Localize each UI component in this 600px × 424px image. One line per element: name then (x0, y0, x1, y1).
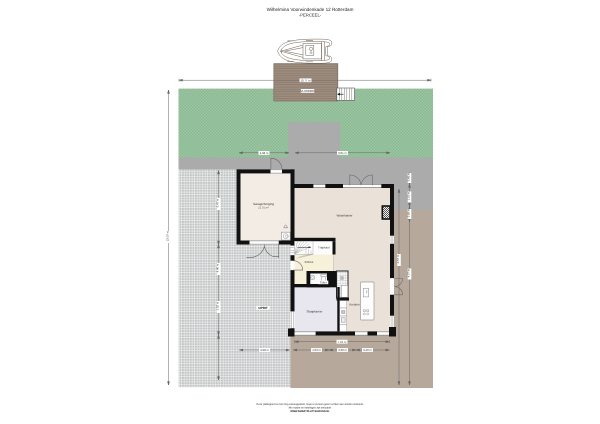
svg-text:VLONDER: VLONDER (301, 89, 315, 93)
svg-text:3.40 m: 3.40 m (363, 348, 372, 352)
svg-text:Trapkast: Trapkast (318, 246, 330, 250)
svg-text:1.92 m: 1.92 m (216, 301, 220, 310)
svg-text:WWW.SMARTPLATTEGROND.NL: WWW.SMARTPLATTEGROND.NL (290, 410, 330, 413)
svg-text:0.68 m: 0.68 m (408, 208, 411, 217)
svg-text:4.57 m: 4.57 m (396, 254, 400, 263)
svg-text:0.48 m: 0.48 m (408, 172, 411, 181)
svg-text:23.07 m: 23.07 m (166, 230, 170, 241)
svg-text:4.98 m: 4.98 m (260, 151, 269, 155)
svg-text:1.03 m: 1.03 m (312, 348, 321, 352)
svg-text:OPRIT: OPRIT (258, 306, 268, 310)
svg-text:7.91 m: 7.91 m (338, 340, 347, 344)
svg-text:10.77 m: 10.77 m (300, 78, 311, 82)
svg-text:4.57 m: 4.57 m (408, 268, 411, 277)
svg-text:4.98 m: 4.98 m (260, 348, 269, 352)
svg-text:5.47 m: 5.47 m (216, 198, 220, 207)
svg-text:3.30 m: 3.30 m (338, 348, 347, 352)
svg-text:Keuken: Keuken (349, 302, 360, 306)
svg-text:Toilet: Toilet (320, 281, 327, 285)
svg-text:Garage/berging: Garage/berging (253, 202, 274, 206)
svg-text:-PERCEEL-: -PERCEEL- (299, 13, 322, 18)
svg-text:21.01 m²: 21.01 m² (258, 207, 269, 210)
svg-text:Slaapkamer: Slaapkamer (306, 309, 322, 313)
svg-text:Entree: Entree (305, 260, 314, 264)
svg-text:9.01 m: 9.01 m (338, 151, 347, 155)
svg-text:4.40 m: 4.40 m (216, 263, 220, 272)
svg-text:1.01 m: 1.01 m (408, 191, 411, 200)
svg-text:Wilhelmina Voorwindenkade 12 R: Wilhelmina Voorwindenkade 12 Rotterdam (267, 7, 354, 12)
svg-text:Woonkamer: Woonkamer (336, 213, 352, 217)
